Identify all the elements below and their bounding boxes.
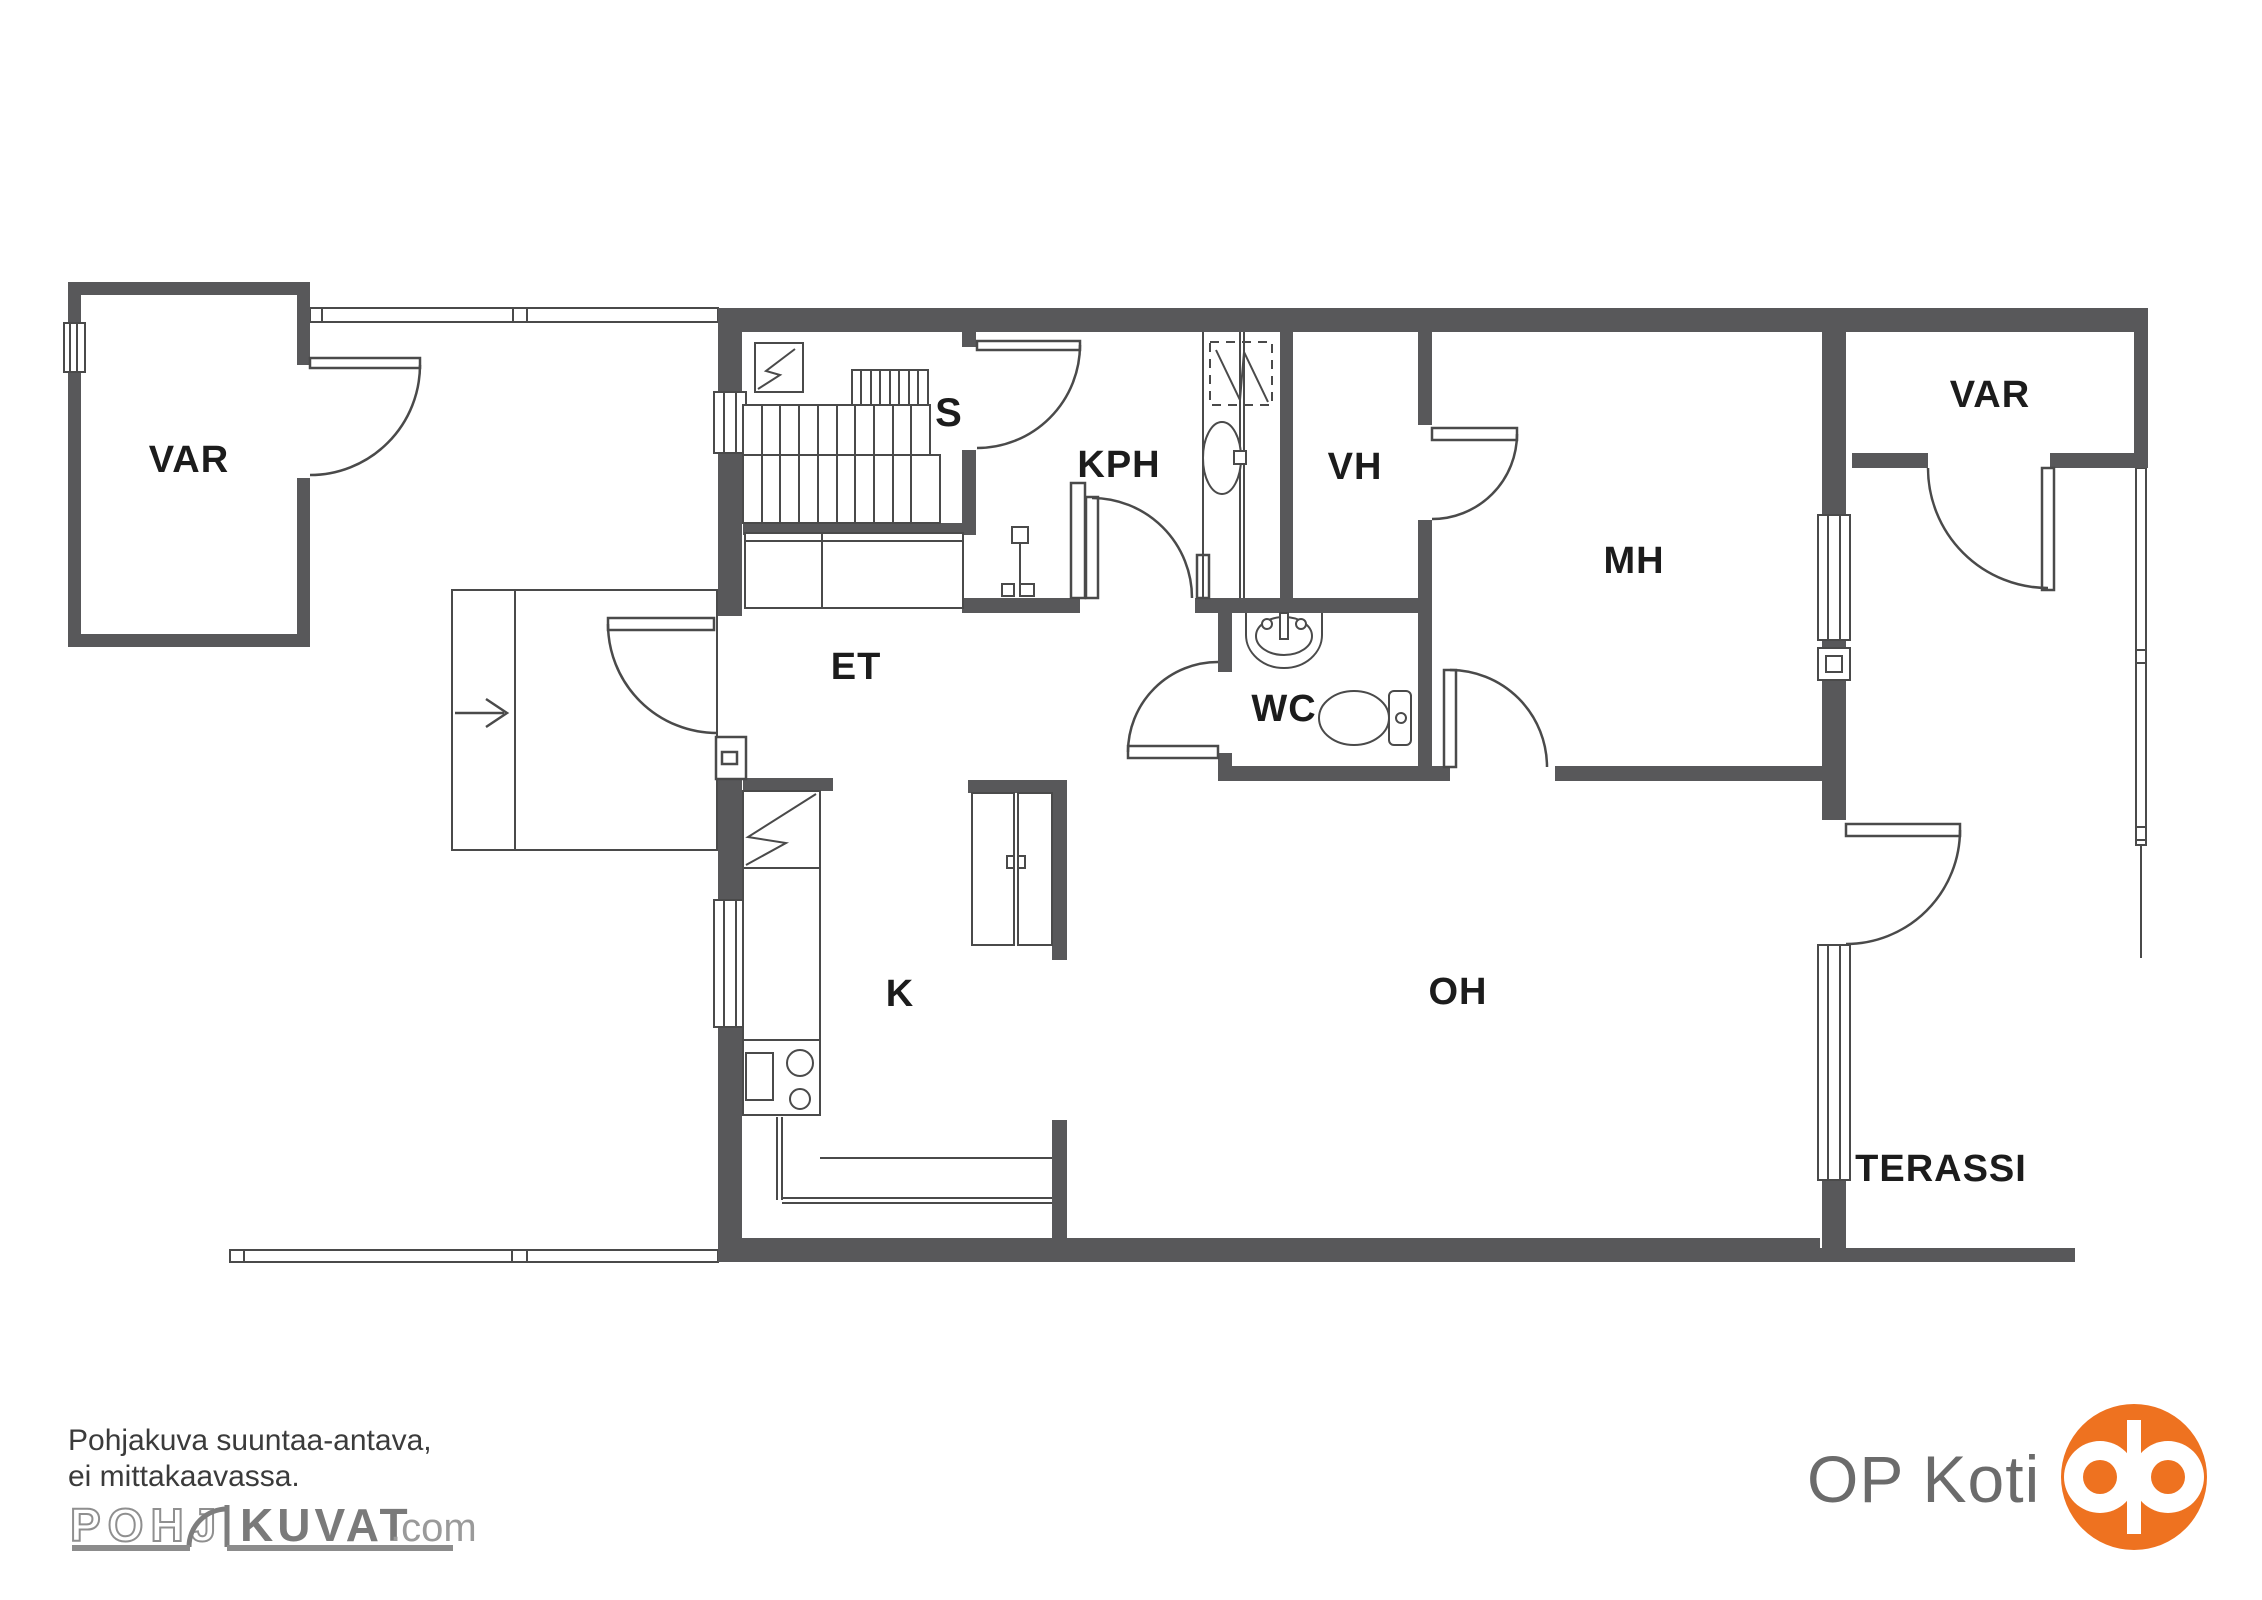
wall xyxy=(962,450,976,535)
wall xyxy=(718,308,2148,332)
wall xyxy=(718,332,742,392)
window-icon xyxy=(714,392,746,453)
room-label-var-right: VAR xyxy=(1950,374,2030,416)
wall xyxy=(743,778,833,791)
room-label-vh: VH xyxy=(1328,446,1383,488)
wall xyxy=(1418,332,1432,425)
pohjakuvat-logo-solid-text: KUVAT xyxy=(240,1499,412,1551)
window-icon xyxy=(64,323,85,372)
wall xyxy=(1418,520,1432,767)
door-swing-icon xyxy=(1071,483,1209,598)
disclaimer-line-1: Pohjakuva suuntaa-antava, xyxy=(68,1424,432,1457)
wall xyxy=(68,372,81,647)
hall-closet xyxy=(745,533,963,608)
disclaimer-line-2: ei mittakaavassa. xyxy=(68,1460,300,1493)
wall xyxy=(718,1027,742,1262)
sauna-stove-icon xyxy=(755,343,803,392)
room-label-s: S xyxy=(935,391,963,435)
room-label-et: ET xyxy=(831,646,882,688)
floor-plan-drawing: VAR S KPH VH MH VAR ET WC K OH TERASSI P… xyxy=(0,0,2262,1600)
wall xyxy=(68,634,310,647)
room-label-oh: OH xyxy=(1429,971,1488,1013)
wall xyxy=(1195,598,1432,613)
fence-bottom xyxy=(230,1250,718,1262)
wall xyxy=(2050,453,2148,468)
window-icon xyxy=(1818,945,1850,1180)
wall xyxy=(718,780,742,900)
door-swing-icon xyxy=(1928,468,2054,590)
op-koti-branding: OP Koti xyxy=(1807,1404,2207,1550)
wall xyxy=(1822,680,1846,820)
room-label-kph: KPH xyxy=(1077,444,1160,486)
door-swing-icon xyxy=(1432,428,1517,519)
door-swing-icon xyxy=(1846,824,1960,944)
toilet-icon xyxy=(1319,691,1411,745)
wall xyxy=(1280,332,1293,613)
wall xyxy=(2134,308,2148,468)
wall xyxy=(1052,1120,1067,1262)
wall xyxy=(962,332,976,347)
room-label-terassi: TERASSI xyxy=(1855,1148,2027,1190)
wall xyxy=(718,453,742,616)
room-label-mh: MH xyxy=(1603,540,1664,582)
wall xyxy=(1822,332,1846,515)
wall xyxy=(1852,453,1928,468)
wall xyxy=(1052,793,1067,960)
pohjakuvat-logo-bar xyxy=(72,1545,190,1551)
kitchen-counter xyxy=(743,791,820,1115)
thin-structures xyxy=(230,308,2146,1262)
window-icon xyxy=(1818,515,1850,640)
wall xyxy=(962,598,1080,613)
terrace-railing xyxy=(2136,468,2146,845)
wall xyxy=(68,282,310,295)
wall xyxy=(718,1238,1820,1262)
shower-mixer-icon xyxy=(1002,527,1034,596)
op-koti-text: OP Koti xyxy=(1807,1442,2040,1516)
door-swing-icon xyxy=(310,358,420,475)
window-icon xyxy=(1818,648,1850,680)
wall xyxy=(297,295,310,365)
pantry-cabinet xyxy=(972,793,1052,945)
door-swing-icon xyxy=(1128,662,1218,758)
wall xyxy=(1218,766,1450,781)
wall xyxy=(68,295,81,323)
pohjakuvat-logo-bar xyxy=(227,1545,453,1551)
wc-sink-icon xyxy=(1246,613,1322,668)
footer: Pohjakuva suuntaa-antava, ei mittakaavas… xyxy=(68,1424,432,1493)
wall xyxy=(297,478,310,647)
bath-shaft xyxy=(1203,332,1272,598)
room-label-k: K xyxy=(886,973,914,1015)
wall xyxy=(1218,613,1232,672)
room-label-wc: WC xyxy=(1251,688,1316,730)
room-label-var-left: VAR xyxy=(149,439,229,481)
windows xyxy=(64,323,1850,1180)
wall xyxy=(1820,1248,2075,1262)
wall xyxy=(968,780,1067,793)
pohjakuvat-logo-suffix: .com xyxy=(390,1506,477,1550)
pohjakuvat-logo-outline-text: POHJ xyxy=(70,1499,223,1551)
window-icon xyxy=(714,900,746,1027)
door-swing-icon xyxy=(1444,670,1547,767)
kitchen-base-counter xyxy=(777,1117,1052,1203)
door-swing-icon xyxy=(977,341,1080,448)
op-logo-icon xyxy=(2061,1404,2207,1550)
floor-plan-page: VAR S KPH VH MH VAR ET WC K OH TERASSI P… xyxy=(0,0,2262,1600)
wall xyxy=(1555,766,1846,781)
pohjakuvat-logo: POHJ KUVAT .com xyxy=(70,1499,477,1551)
